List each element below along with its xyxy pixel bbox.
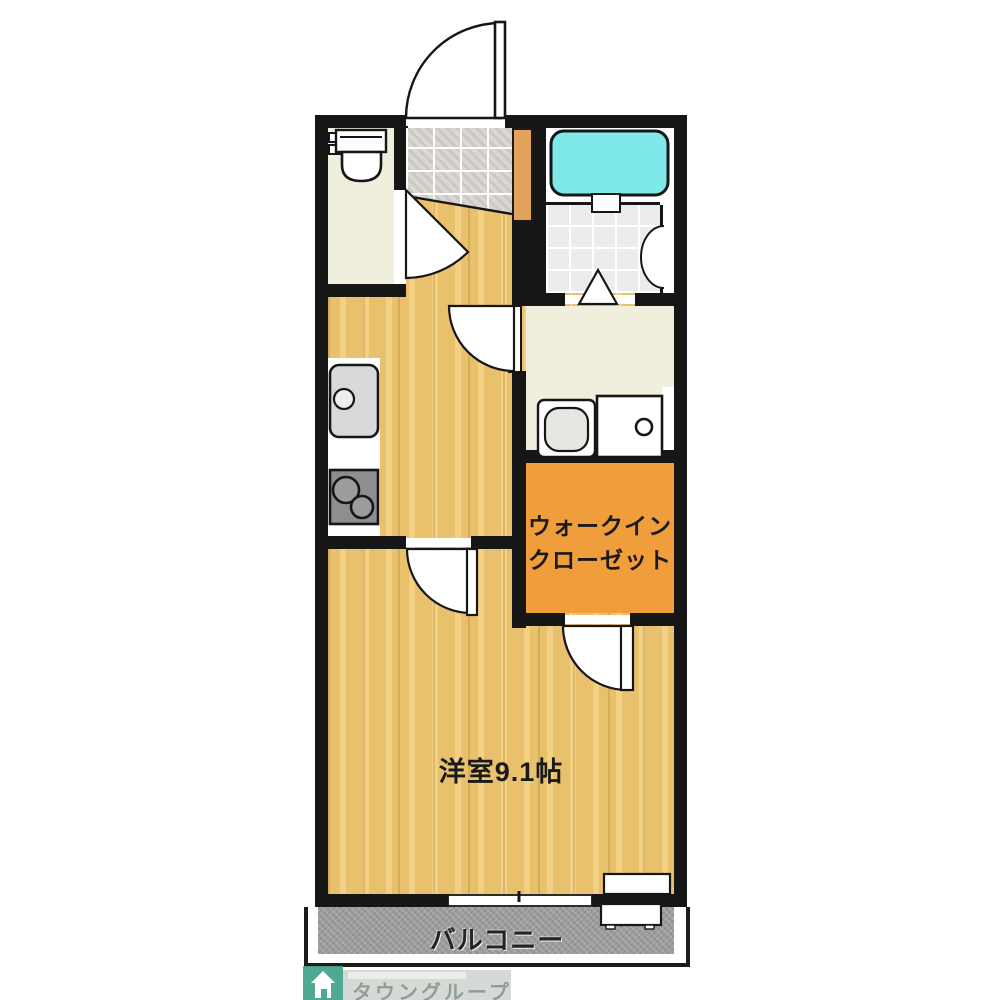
bathtub-icon	[551, 131, 668, 212]
closet-label-line1: ウォークイン	[526, 507, 674, 541]
outdoor-unit-icon	[601, 904, 661, 929]
sink-icon	[330, 365, 378, 437]
two-burner-stove-icon	[330, 470, 378, 524]
washing-machine-pan-icon	[597, 396, 662, 457]
entrance-door-swing-icon	[406, 22, 505, 118]
washbasin-icon	[538, 400, 595, 457]
house-icon	[303, 966, 343, 1000]
sliding-window-icon	[448, 891, 592, 906]
fixtures-overlay	[0, 0, 999, 1000]
folding-door-icon	[579, 270, 617, 304]
closet-door-swing-icon	[563, 626, 633, 690]
closet-label-line2: クローゼット	[526, 541, 674, 575]
washroom-door-swing-icon	[449, 306, 521, 372]
balcony-label: バルコニー	[397, 920, 597, 957]
toilet-icon	[329, 130, 386, 181]
watermark-brand-text: タウングループ	[352, 976, 512, 1000]
floorplan-image: 洋室9.1帖 ウォークイン クローゼット バルコニー タウングループ	[0, 0, 999, 1000]
main-room-label: 洋室9.1帖	[406, 750, 596, 789]
bath-counter-icon	[641, 226, 664, 288]
watermark-logo-square	[303, 966, 343, 1000]
toilet-door-swing-icon	[406, 190, 468, 278]
room-door-swing-icon	[407, 549, 477, 615]
ac-unit-icon	[604, 874, 670, 894]
